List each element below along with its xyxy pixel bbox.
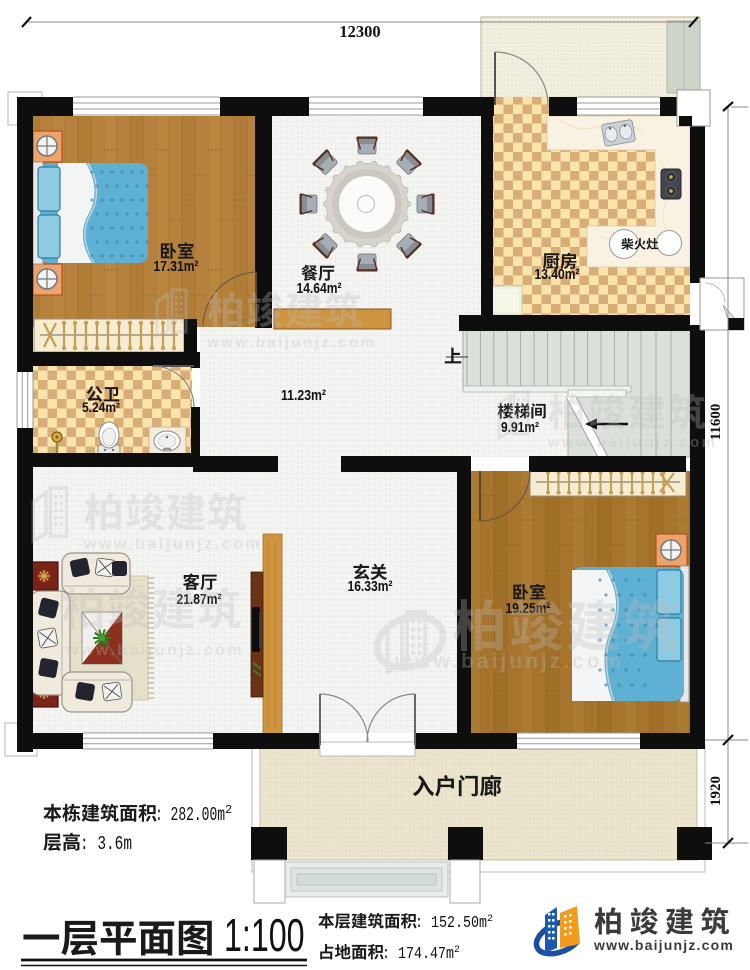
svg-text:: 282.00m2: : 282.00m2 [155,803,232,826]
svg-text:5.24m²: 5.24m² [82,399,120,415]
svg-text:16.33m²: 16.33m² [348,578,393,595]
svg-text:14.64m²: 14.64m² [297,280,342,297]
svg-text:www.baijunjz.com: www.baijunjz.com [83,536,262,553]
svg-text:17.31m²: 17.31m² [154,258,199,275]
svg-text:www.baijunjz.com: www.baijunjz.com [206,334,376,351]
svg-text:: 3.6m: : 3.6m [80,833,132,855]
svg-text:13.40m²: 13.40m² [535,266,580,283]
svg-text:www.baijunjz.com: www.baijunjz.com [593,937,734,953]
svg-text:www.baijunjz.com: www.baijunjz.com [547,434,717,451]
svg-text:1920: 1920 [708,776,724,806]
svg-text:11600: 11600 [708,404,724,441]
svg-text:12300: 12300 [339,22,380,41]
svg-text:1:100: 1:100 [224,910,305,961]
svg-text:: 174.47m2: : 174.47m2 [382,944,460,963]
svg-text:www.baijunjz.com: www.baijunjz.com [65,642,244,659]
svg-text:www.baijunjz.com: www.baijunjz.com [394,650,624,673]
svg-text:11.23m²: 11.23m² [281,387,326,404]
svg-text:: 152.50m2: : 152.50m2 [415,913,493,932]
